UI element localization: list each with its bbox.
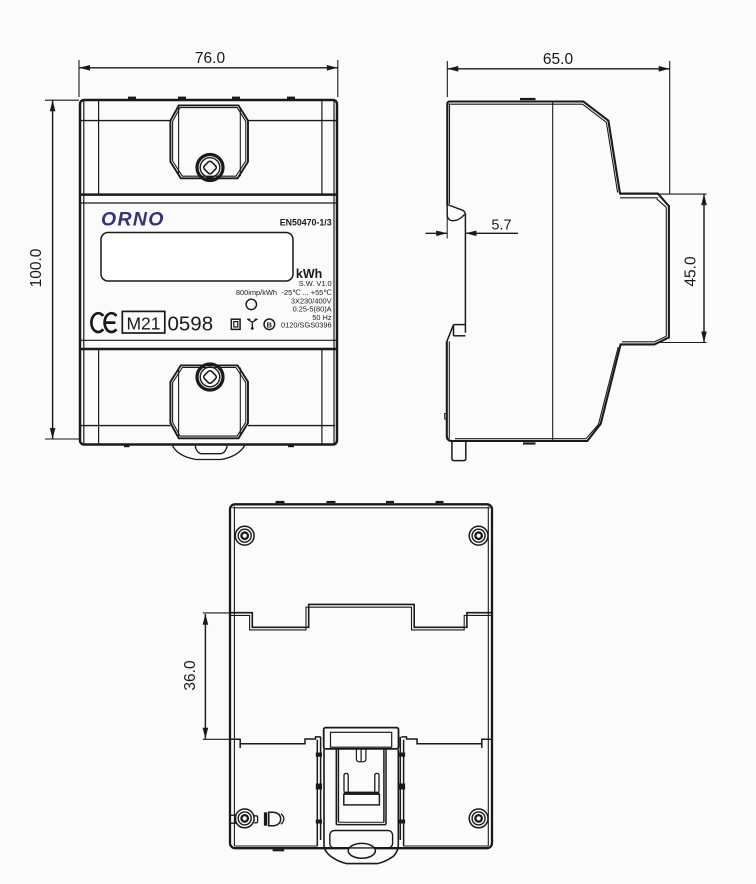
svg-text:65.0: 65.0 — [543, 51, 574, 68]
svg-text:800imp/kWh: 800imp/kWh — [236, 288, 277, 297]
svg-text:100.0: 100.0 — [28, 248, 45, 287]
svg-text:76.0: 76.0 — [195, 50, 226, 67]
svg-text:ORNO: ORNO — [101, 209, 165, 231]
svg-text:M21: M21 — [126, 313, 160, 333]
svg-text:0120/SGS0396: 0120/SGS0396 — [281, 320, 332, 329]
svg-text:B: B — [267, 320, 272, 329]
svg-text:45.0: 45.0 — [683, 256, 700, 287]
svg-text:S.W. V1.0: S.W. V1.0 — [299, 279, 332, 288]
svg-text:0598: 0598 — [168, 313, 214, 336]
svg-text:EN50470-1/3: EN50470-1/3 — [280, 217, 332, 227]
svg-text:36.0: 36.0 — [182, 660, 199, 691]
svg-text:5.7: 5.7 — [491, 217, 511, 233]
